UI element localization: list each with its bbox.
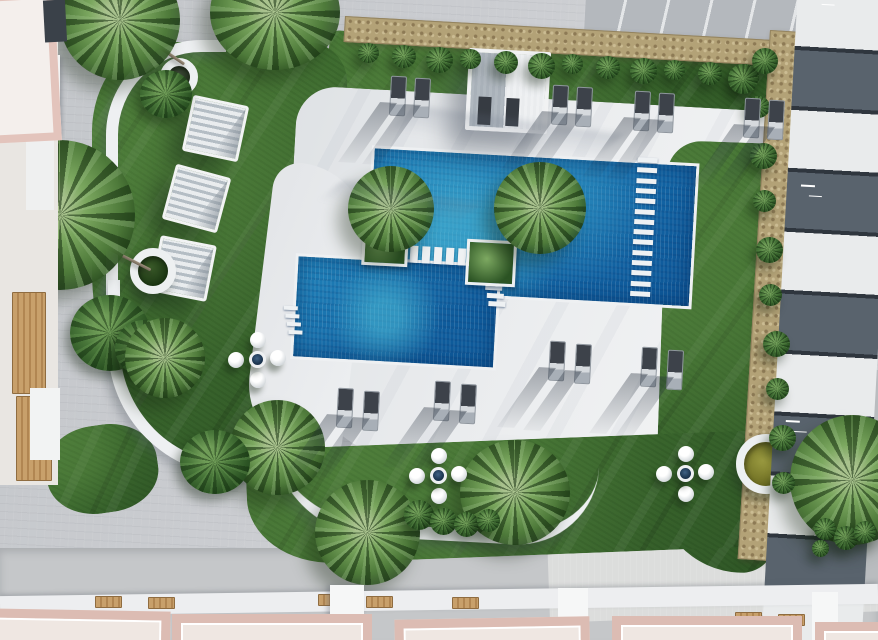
rooftop-frame: [394, 616, 590, 640]
rooftop-frame: [612, 616, 802, 640]
pool-mini-step: [488, 301, 505, 306]
pool-step: [631, 281, 651, 287]
rooftop-frame: [172, 614, 372, 640]
pool-step: [632, 260, 652, 266]
pool-step: [633, 239, 653, 245]
stepping-stone: [434, 247, 443, 264]
antenna: [801, 184, 815, 187]
pool-step: [635, 209, 655, 215]
palm-bottom-right-of-tables: [460, 440, 570, 545]
aerial-render-canvas: [0, 0, 878, 640]
wood-deck: [12, 292, 46, 394]
stepping-stone: [422, 246, 431, 263]
bench-wood: [452, 597, 479, 609]
bench-wood: [95, 596, 122, 608]
pool-planter-box-right: [465, 239, 517, 288]
pool-edge-step: [287, 322, 301, 327]
bench-wood: [148, 597, 175, 609]
pool-step: [633, 229, 653, 235]
pool-step: [636, 188, 656, 194]
pool-step: [638, 157, 658, 163]
antenna: [786, 420, 800, 423]
stepping-stone: [445, 248, 454, 265]
pool-step: [630, 291, 650, 297]
bush: [140, 70, 192, 118]
bush: [180, 430, 250, 494]
building-left-strip: [0, 0, 58, 485]
rooftop-frame: [815, 622, 878, 640]
bench-wood: [366, 596, 393, 608]
pool-step: [635, 198, 655, 204]
pool-step: [631, 270, 651, 276]
pool-step: [634, 219, 654, 225]
white-wall-block: [26, 140, 54, 210]
stepping-stone: [457, 248, 466, 265]
round-planter-left: [130, 248, 176, 294]
glass-panel: [43, 0, 67, 43]
pool-mini-step: [487, 293, 504, 298]
pool-step: [636, 178, 656, 184]
pool-step: [632, 250, 652, 256]
cabana-1: [182, 95, 250, 163]
pool-edge-step: [284, 306, 298, 311]
stepping-stone: [410, 246, 419, 263]
white-wall-block: [30, 388, 60, 460]
pool-edge-step: [285, 314, 299, 319]
pool-palm-right: [494, 162, 586, 254]
fern-palm: [125, 318, 205, 398]
rooftop-frame: [0, 608, 171, 640]
palm-bottom-center: [315, 480, 420, 585]
pool-edge-step: [288, 330, 302, 335]
pool-step: [637, 167, 657, 173]
